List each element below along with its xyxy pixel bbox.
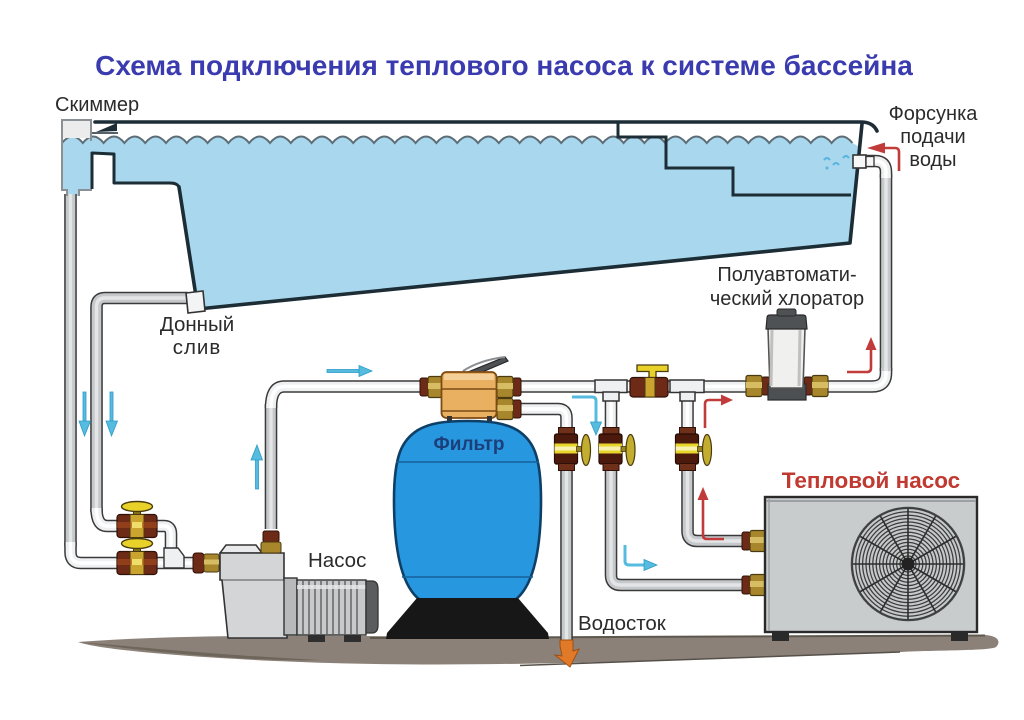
svg-text:Форсунка: Форсунка — [889, 103, 979, 125]
svg-text:воды: воды — [909, 149, 956, 171]
svg-text:Насос: Насос — [308, 549, 366, 572]
svg-text:Схема подключения теплового на: Схема подключения теплового насоса к сис… — [95, 50, 913, 81]
svg-text:Фильтр: Фильтр — [434, 434, 505, 455]
svg-text:Водосток: Водосток — [578, 612, 667, 635]
svg-text:Полуавтомати-: Полуавтомати- — [717, 264, 856, 286]
svg-text:Скиммер: Скиммер — [55, 94, 139, 116]
svg-text:Донный: Донный — [160, 313, 234, 336]
svg-text:Тепловой насос: Тепловой насос — [782, 468, 960, 493]
svg-text:подачи: подачи — [900, 126, 965, 148]
svg-text:ческий хлоратор: ческий хлоратор — [710, 288, 864, 310]
svg-text:слив: слив — [173, 336, 222, 359]
